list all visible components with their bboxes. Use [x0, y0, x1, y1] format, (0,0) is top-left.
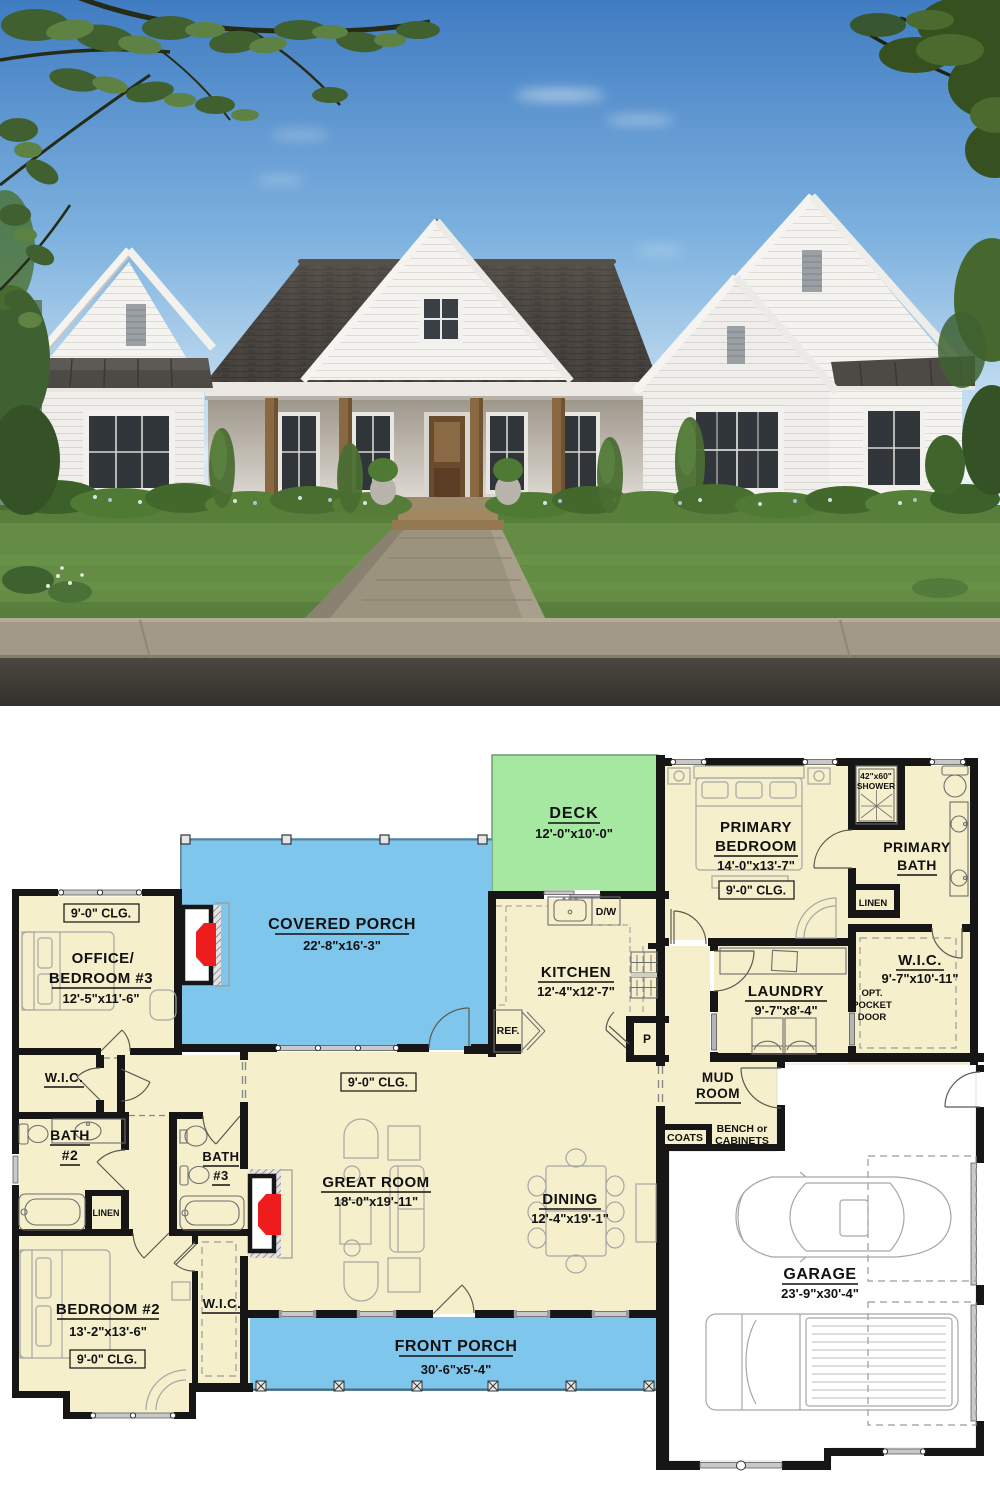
svg-text:FRONT PORCH: FRONT PORCH — [395, 1338, 518, 1355]
svg-text:LINEN: LINEN — [859, 898, 888, 909]
svg-text:D/W: D/W — [596, 906, 617, 918]
svg-text:P: P — [643, 1032, 651, 1046]
svg-text:23'-9"x30'-4": 23'-9"x30'-4" — [781, 1286, 859, 1301]
svg-text:12'-4"x19'-1": 12'-4"x19'-1" — [531, 1211, 609, 1226]
svg-text:MUD: MUD — [702, 1070, 734, 1085]
svg-text:KITCHEN: KITCHEN — [541, 964, 611, 981]
svg-text:12'-4"x12'-7": 12'-4"x12'-7" — [537, 984, 615, 999]
svg-text:W.I.C.: W.I.C. — [45, 1070, 83, 1085]
svg-text:9'-7"x8'-4": 9'-7"x8'-4" — [754, 1003, 817, 1018]
svg-text:BATH: BATH — [50, 1127, 90, 1143]
svg-text:SHOWER: SHOWER — [857, 781, 895, 791]
svg-text:9'-0" CLG.: 9'-0" CLG. — [726, 884, 786, 898]
svg-text:LINEN: LINEN — [93, 1208, 120, 1218]
svg-text:DECK: DECK — [549, 805, 598, 822]
svg-text:COVERED PORCH: COVERED PORCH — [268, 916, 416, 933]
svg-text:#3: #3 — [213, 1168, 228, 1183]
svg-text:BEDROOM: BEDROOM — [715, 838, 797, 855]
svg-text:30'-6"x5'-4": 30'-6"x5'-4" — [421, 1362, 492, 1377]
svg-text:#2: #2 — [62, 1147, 79, 1163]
svg-text:14'-0"x13'-7": 14'-0"x13'-7" — [717, 858, 795, 873]
svg-text:9'-0" CLG.: 9'-0" CLG. — [77, 1353, 137, 1367]
svg-text:CABINETS: CABINETS — [715, 1135, 769, 1147]
svg-text:12'-0"x10'-0": 12'-0"x10'-0" — [535, 826, 613, 841]
svg-text:GREAT ROOM: GREAT ROOM — [322, 1174, 429, 1191]
svg-text:POCKET: POCKET — [852, 1000, 892, 1011]
svg-text:ROOM: ROOM — [696, 1086, 740, 1101]
svg-text:W.I.C.: W.I.C. — [898, 952, 942, 969]
svg-text:9'-0" CLG.: 9'-0" CLG. — [71, 907, 131, 921]
svg-text:BEDROOM #2: BEDROOM #2 — [56, 1301, 160, 1318]
svg-text:BATH: BATH — [202, 1149, 239, 1164]
svg-text:REF.: REF. — [497, 1025, 520, 1037]
svg-text:18'-0"x19'-11": 18'-0"x19'-11" — [334, 1194, 418, 1209]
svg-text:BENCH or: BENCH or — [717, 1123, 768, 1135]
svg-text:OPT.: OPT. — [861, 988, 882, 999]
svg-text:BEDROOM #3: BEDROOM #3 — [49, 970, 153, 987]
svg-text:PRIMARY: PRIMARY — [883, 839, 951, 855]
svg-text:42"x60": 42"x60" — [860, 771, 892, 781]
svg-text:12'-5"x11'-6": 12'-5"x11'-6" — [62, 991, 139, 1006]
svg-text:LAUNDRY: LAUNDRY — [748, 983, 824, 1000]
svg-text:PRIMARY: PRIMARY — [720, 819, 792, 836]
svg-text:DINING: DINING — [542, 1191, 598, 1208]
svg-text:COATS: COATS — [667, 1132, 703, 1144]
svg-text:OFFICE/: OFFICE/ — [72, 950, 135, 967]
svg-text:BATH: BATH — [897, 857, 937, 873]
svg-text:22'-8"x16'-3": 22'-8"x16'-3" — [303, 938, 381, 953]
svg-text:W.I.C.: W.I.C. — [203, 1296, 241, 1311]
svg-text:DOOR: DOOR — [858, 1012, 887, 1023]
svg-text:9'-0" CLG.: 9'-0" CLG. — [348, 1076, 408, 1090]
svg-text:13'-2"x13'-6": 13'-2"x13'-6" — [69, 1324, 147, 1339]
svg-text:GARAGE: GARAGE — [783, 1266, 856, 1283]
svg-text:9'-7"x10'-11": 9'-7"x10'-11" — [881, 971, 958, 986]
